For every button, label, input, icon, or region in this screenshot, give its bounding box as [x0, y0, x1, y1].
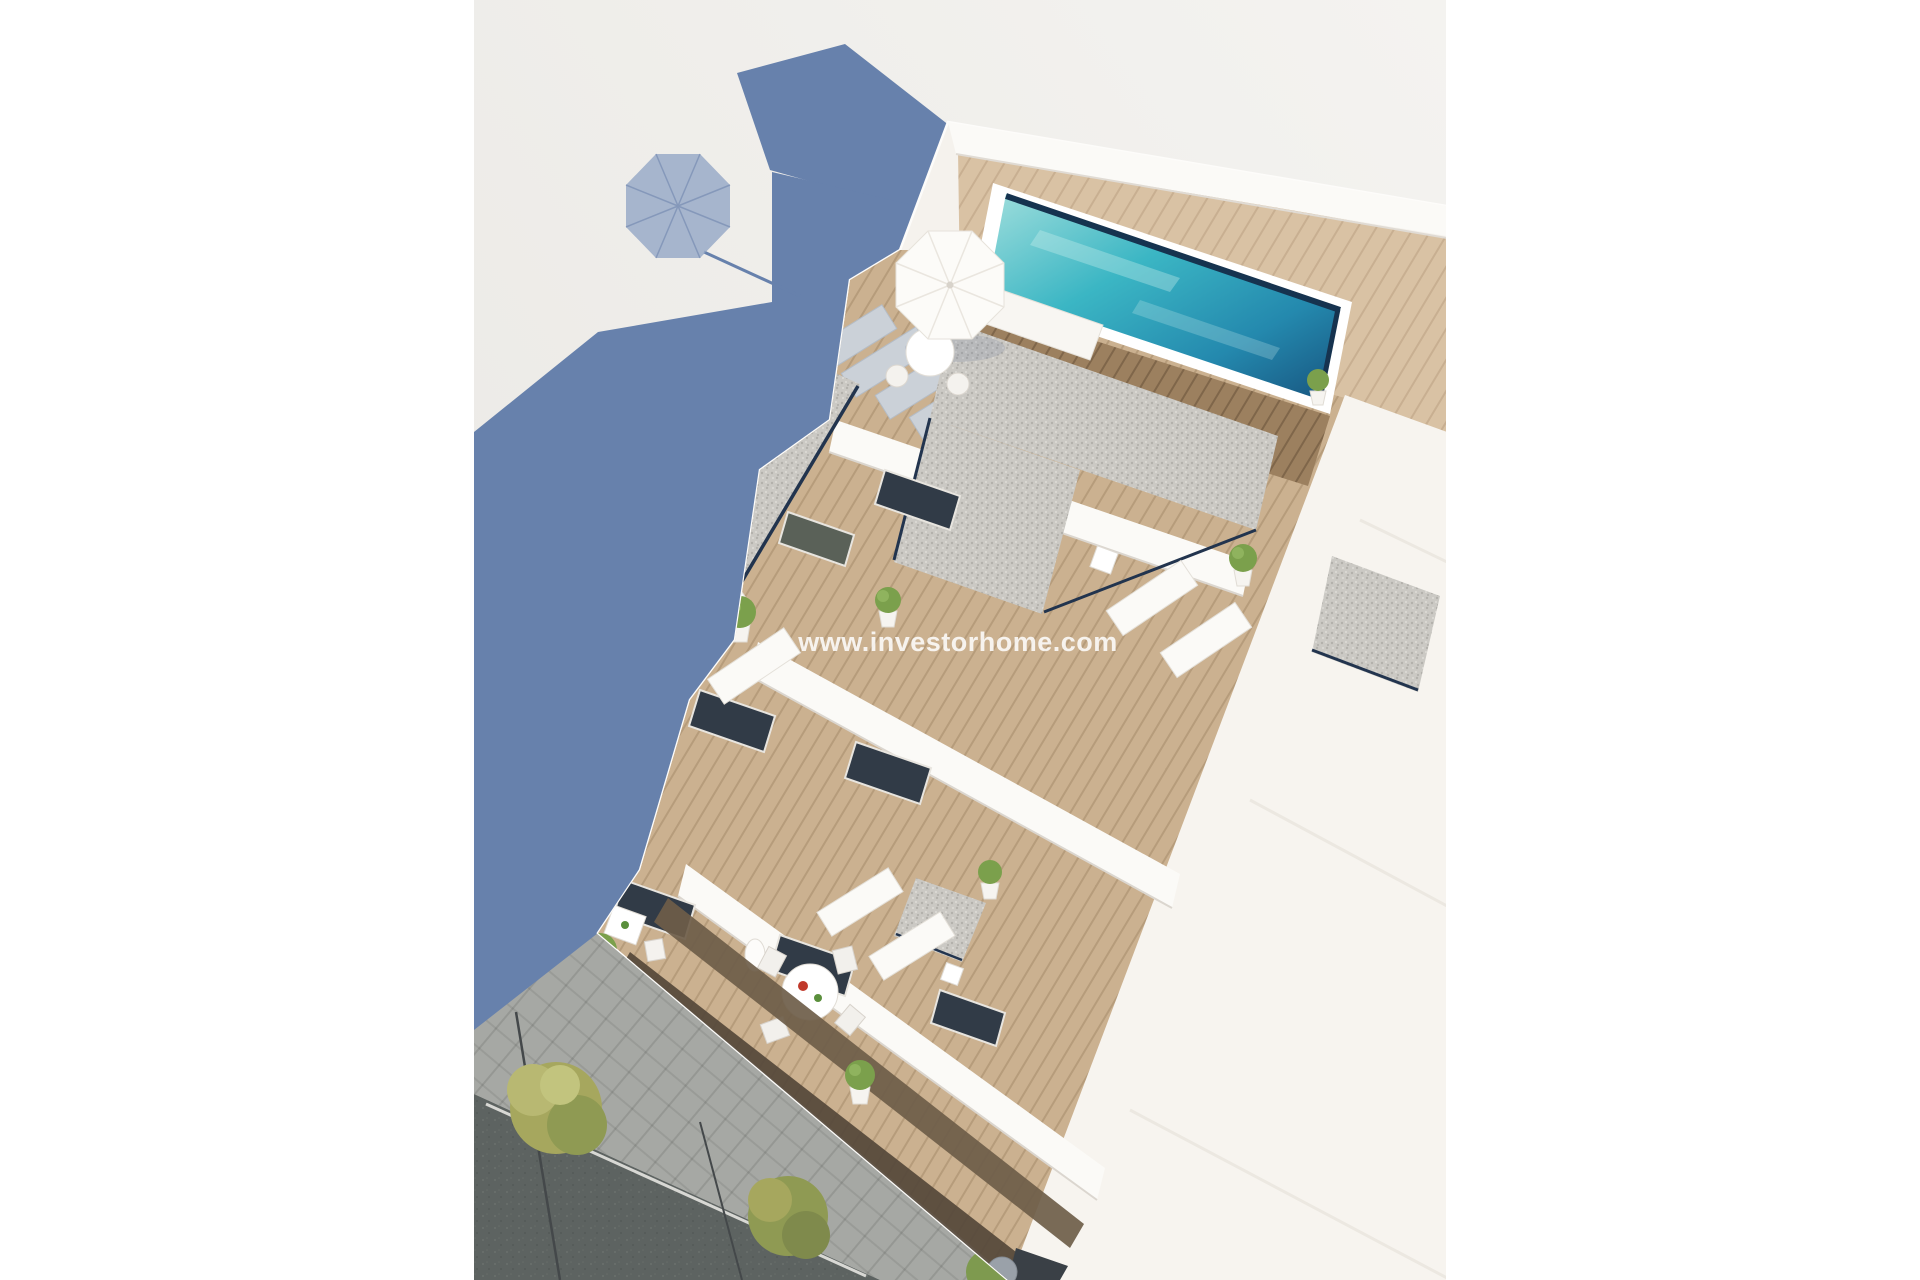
- real-estate-render-page: www.investorhome.com: [0, 0, 1920, 1280]
- chair: [947, 373, 969, 395]
- photo-area: www.investorhome.com: [474, 0, 1447, 1280]
- umbrella-pole-top: [947, 282, 954, 289]
- chair: [886, 365, 908, 387]
- watermark-text: www.investorhome.com: [797, 627, 1118, 657]
- red-plate: [798, 981, 808, 991]
- green-plate: [814, 994, 822, 1002]
- aerial-building-render: www.investorhome.com: [0, 0, 1920, 1280]
